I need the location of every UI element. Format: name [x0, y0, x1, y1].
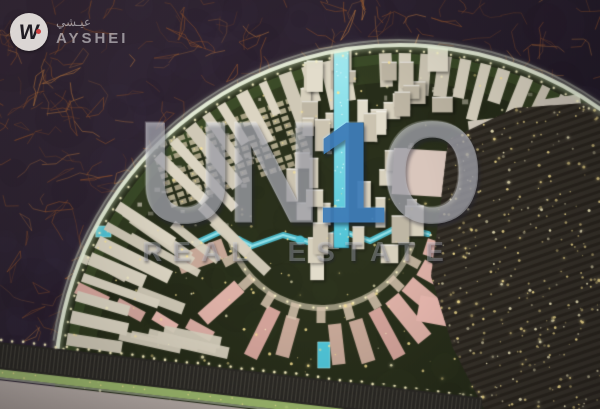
- logo-arabic-name: عيـشي: [56, 16, 128, 30]
- logo-english-name: AYSHEI: [56, 30, 128, 47]
- logo-red-dot-icon: [36, 29, 41, 34]
- ayshei-monogram-icon: W: [10, 13, 48, 51]
- ayshei-logo: W عيـشي AYSHEI: [10, 13, 128, 51]
- masterplan-photo: W عيـشي AYSHEI UN1O REAL ESTATE: [0, 0, 600, 409]
- logo-wordmark: عيـشي AYSHEI: [56, 16, 128, 47]
- masterplan-aerial-render: [0, 0, 600, 409]
